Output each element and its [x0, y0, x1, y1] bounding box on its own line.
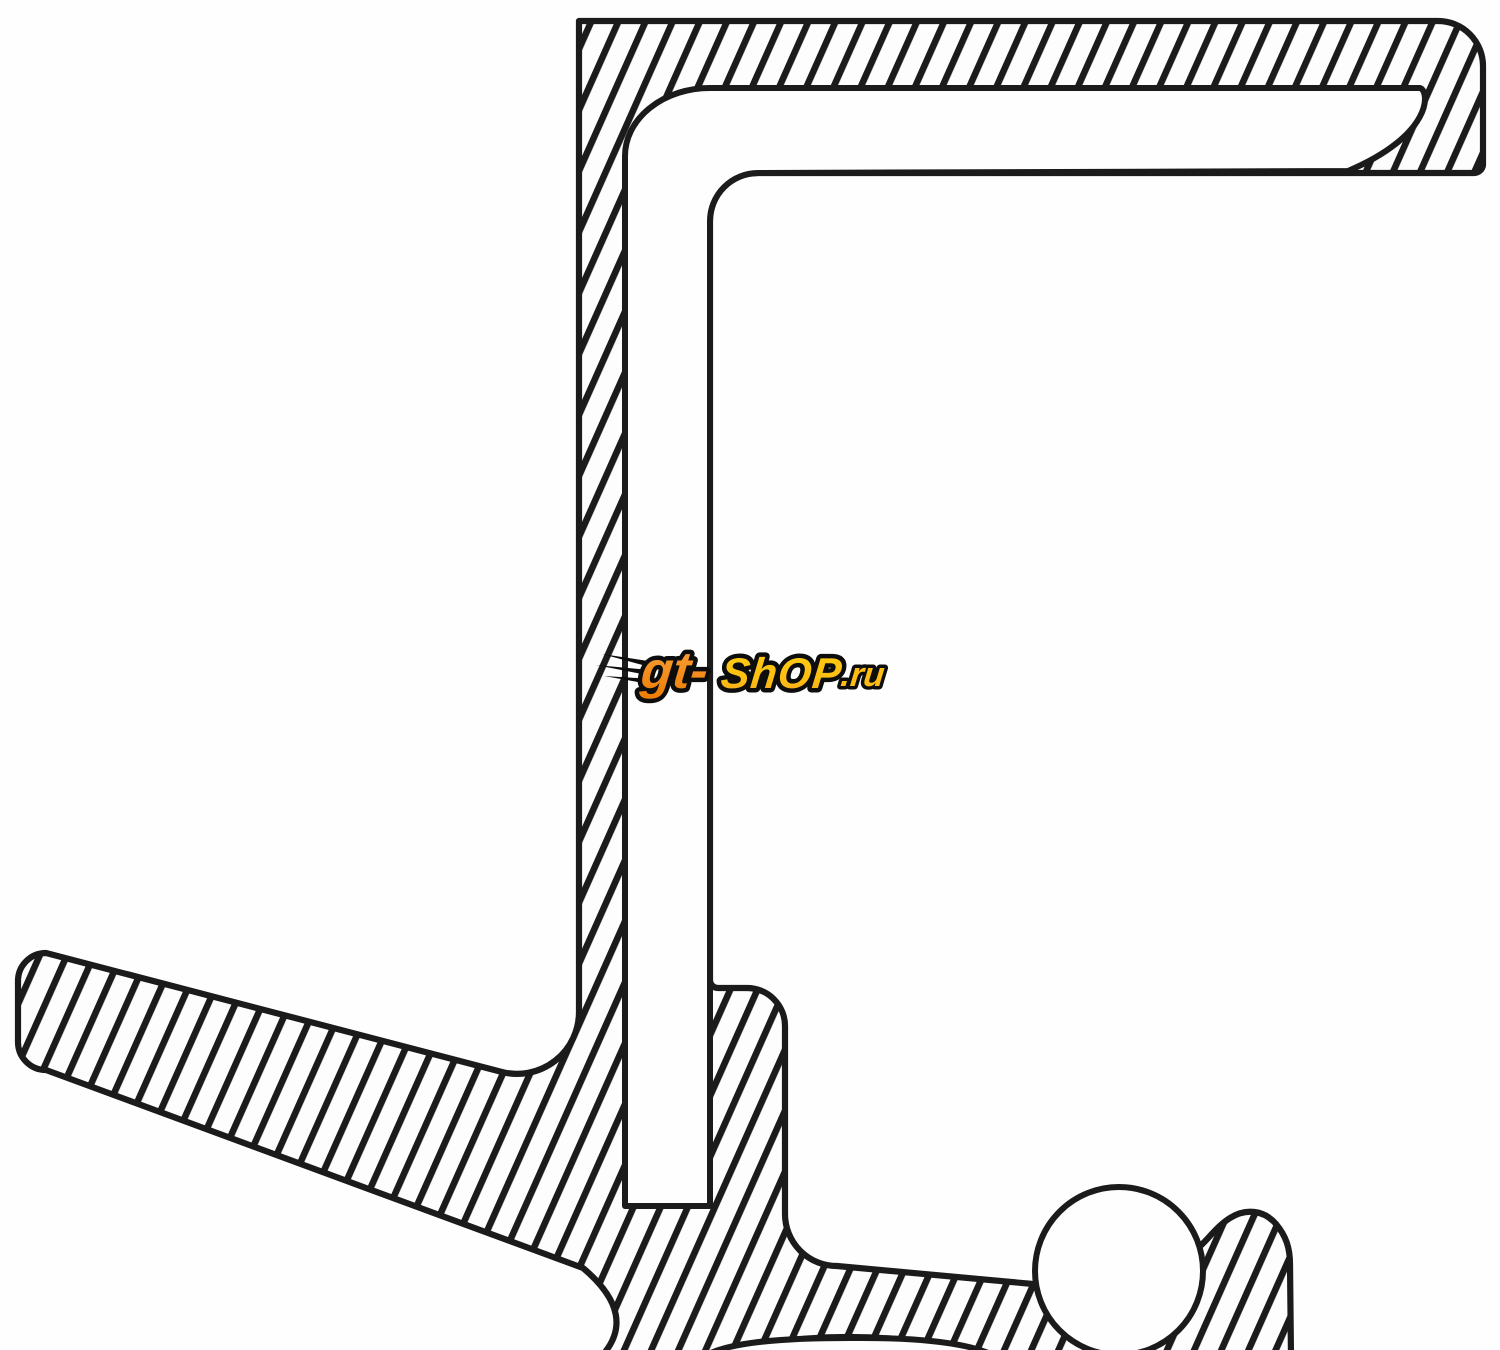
svg-text:.ru: .ru — [839, 656, 887, 694]
svg-text:gt-: gt- — [637, 642, 710, 700]
svg-text:ShOP: ShOP — [719, 650, 845, 698]
